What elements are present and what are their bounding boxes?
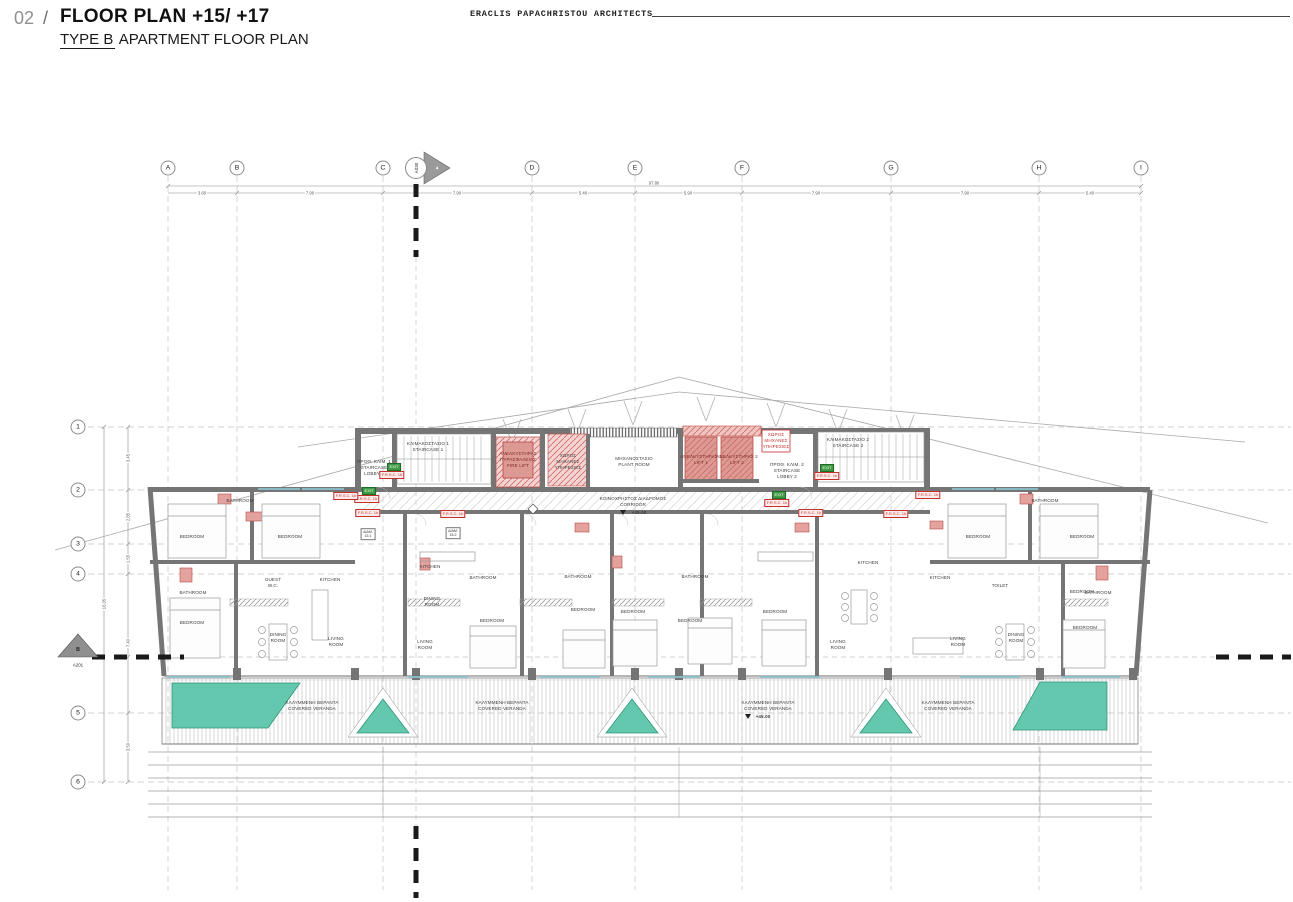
veranda-label: ΚΑΛΥΜΜΕΝΗ ΒΕΡΑΝΤΑ COVERED VERANDA	[285, 700, 338, 712]
room-label-bedroom: BEDROOM	[1073, 625, 1097, 631]
exit-tag: EXIT	[820, 464, 834, 472]
grid-column-b: B	[230, 161, 245, 176]
staircase-2-label: ΚΛΙΜΑΚΟΣΤΑΣΙΟ 2 STAIRCASE 2	[827, 437, 869, 449]
grid-row-6: 6	[71, 775, 86, 790]
fire-rating-tag: F.R.S.C. 1h	[915, 491, 940, 499]
grid-column-d: D	[525, 161, 540, 176]
apartment-number-tag: ΔΙΑΜ. 15.1	[361, 528, 376, 540]
room-label-kitchen: KITCHEN	[930, 575, 951, 581]
services-box-2-label: ΧΩΡΟΣ ΜΗΧΑΝΕΣ ΥΠΗΡΕΣΙΕΣ	[763, 432, 790, 450]
bay-dim-gh: 7.90	[960, 191, 970, 196]
lift-2-label: ΑΝΕΛΚΥΣΤΗΡΑΣ 2 LIFT 2	[716, 454, 757, 466]
apartment-number-tag: ΔΙΑΜ. 15.2	[446, 527, 461, 539]
room-label-bedroom: BEDROOM	[678, 618, 702, 624]
grid-row-5: 5	[71, 706, 86, 721]
room-label-dining: DINING ROOM	[424, 596, 441, 608]
room-label-bedroom: BEDROOM	[180, 620, 204, 626]
grid-column-c: C	[376, 161, 391, 176]
room-label-living: LIVING ROOM	[950, 636, 966, 648]
bay-dim-hi: 5.40	[1085, 191, 1095, 196]
bay-dim-de: 5.40	[578, 191, 588, 196]
veranda-level: +45.00	[756, 714, 771, 720]
grid-row-1: 1	[71, 420, 86, 435]
grid-column-h: H	[1032, 161, 1047, 176]
fire-lift-label: ΑΝΕΛΚΥΣΤΗΡΑΣ ΠΥΡΑΣΦΑΛΕΙΑΣ FIRE LIFT	[499, 451, 536, 469]
row-dim-12: 3.45	[126, 453, 131, 463]
bay-dim-ab: 3.60	[197, 191, 207, 196]
fire-rating-tag: F.R.S.C. 1h	[440, 510, 465, 518]
section-marker-top-bubble: A030	[405, 157, 427, 179]
room-label-kitchen: KITCHEN	[420, 564, 441, 570]
grid-column-e: E	[628, 161, 643, 176]
floor-plan-drawing	[0, 0, 1293, 902]
services-shaft-label: ΧΩΡΟΣ ΜΗΧΑΝΕΣ ΥΠΗΡΕΣΙΕΣ	[555, 453, 582, 471]
grid-row-3: 3	[71, 537, 86, 552]
staircase-1-label: ΚΛΙΜΑΚΟΣΤΑΣΙΟ 1 STAIRCASE 1	[407, 441, 449, 453]
header-rule	[652, 16, 1290, 17]
grid-row-4: 4	[71, 567, 86, 582]
grid-column-f: F	[735, 161, 750, 176]
sheet-subtitle: TYPE B APARTMENT FLOOR PLAN	[60, 31, 309, 48]
fire-rating-tag: F.R.S.C. 1h	[333, 492, 358, 500]
veranda-label: ΚΑΛΥΜΜΕΝΗ ΒΕΡΑΝΤΑ COVERED VERANDA	[475, 700, 528, 712]
subtitle-rest: APARTMENT FLOOR PLAN	[115, 31, 308, 48]
section-marker-left-arrow	[58, 634, 98, 657]
room-label-living: LIVING ROOM	[417, 639, 433, 651]
staircase-lobby-2-label: ΠΡΟΘ. ΚΛΙΜ. 2 STAIRCASE LOBBY 2	[770, 462, 804, 480]
corridor-level: +45.00	[632, 510, 647, 516]
bay-dim-fg: 7.90	[811, 191, 821, 196]
room-label-bathroom: BATHROOM	[681, 574, 708, 580]
section-marker-top-number: 4	[436, 166, 439, 171]
room-label-bathroom: BATHROOM	[469, 575, 496, 581]
row-dim-23: 2.85	[126, 512, 131, 522]
room-label-kitchen: KITCHEN	[320, 577, 341, 583]
exit-tag: EXIT	[387, 463, 401, 471]
grid-column-a: A	[161, 161, 176, 176]
fire-rating-tag: F.R.S.C. 1h	[355, 509, 380, 517]
fire-rating-tag: F.R.S.C. 1h	[814, 472, 839, 480]
room-label-bathroom: BATHROOM	[179, 590, 206, 596]
room-label-toilet: TOILET	[992, 583, 1009, 589]
plant-room-label: ΜΗΧΑΝΟΣΤΑΣΙΟ PLANT ROOM	[615, 456, 652, 468]
room-label-living: LIVING ROOM	[328, 636, 344, 648]
section-marker-left-sheet: A201	[72, 663, 84, 668]
room-label-living: LIVING ROOM	[830, 639, 846, 651]
room-label-kitchen: KITCHEN	[858, 560, 879, 566]
bay-dim-bc: 7.90	[305, 191, 315, 196]
overall-width-dim: 97.80	[648, 181, 660, 186]
row-dim-56: 3.50	[126, 742, 131, 752]
room-label-bathroom: BATHROOM	[1031, 498, 1058, 504]
fire-rating-tag: F.R.S.C. 1h	[379, 471, 404, 479]
row-dim-45: 7.40	[126, 638, 131, 648]
room-label-bedroom: BEDROOM	[621, 609, 645, 615]
room-label-bedroom: BEDROOM	[763, 609, 787, 615]
room-label-bedroom: BEDROOM	[180, 534, 204, 540]
veranda-label: ΚΑΛΥΜΜΕΝΗ ΒΕΡΑΝΤΑ COVERED VERANDA	[741, 700, 794, 712]
section-marker-left-letter: B	[76, 647, 80, 653]
fire-rating-tag: F.R.S.C. 1h	[798, 509, 823, 517]
subtitle-emphasis: TYPE B	[60, 31, 115, 49]
room-label-bathroom: BATHROOM	[1084, 590, 1111, 596]
sheet-index-separator: /	[43, 8, 48, 29]
room-label-guest-wc: GUEST W.C.	[265, 577, 281, 589]
architect-firm-name: ERACLIS PAPACHRISTOU ARCHITECTS	[470, 9, 653, 19]
corridor-label: ΚΟΙΝΟΧΡΗΣΤΟΣ ΔΙΑΔΡΟΜΟΣ CORRIDOR	[600, 496, 667, 508]
grid-row-2: 2	[71, 483, 86, 498]
bay-dim-ef: 5.90	[683, 191, 693, 196]
room-label-bathroom: BATHROOM	[226, 498, 253, 504]
room-label-bedroom: BEDROOM	[966, 534, 990, 540]
veranda-label: ΚΑΛΥΜΜΕΝΗ ΒΕΡΑΝΤΑ COVERED VERANDA	[921, 700, 974, 712]
exit-tag: EXIT	[772, 491, 786, 499]
room-label-bedroom: BEDROOM	[480, 618, 504, 624]
room-label-bedroom: BEDROOM	[571, 607, 595, 613]
fire-rating-tag: F.R.S.C. 1h	[883, 510, 908, 518]
sheet-index: 02	[14, 8, 34, 29]
room-label-bathroom: BATHROOM	[564, 574, 591, 580]
room-label-dining: DINING ROOM	[1008, 632, 1025, 644]
bay-dim-cd: 7.90	[452, 191, 462, 196]
room-label-bedroom: BEDROOM	[278, 534, 302, 540]
room-label-dining: DINING ROOM	[270, 632, 287, 644]
exit-tag: EXIT	[362, 487, 376, 495]
sheet-title: FLOOR PLAN +15/ +17	[60, 6, 270, 28]
overall-height-dim: 16.05	[102, 598, 107, 610]
fire-rating-tag: F.R.S.C. 1h	[764, 499, 789, 507]
section-marker-shapes	[58, 152, 450, 657]
row-dim-34: 1.55	[126, 554, 131, 564]
grid-column-i: I	[1134, 161, 1149, 176]
grid-column-g: G	[884, 161, 899, 176]
room-label-bedroom: BEDROOM	[1070, 534, 1094, 540]
drawing-sheet: 02 / FLOOR PLAN +15/ +17 TYPE B APARTMEN…	[0, 0, 1293, 902]
